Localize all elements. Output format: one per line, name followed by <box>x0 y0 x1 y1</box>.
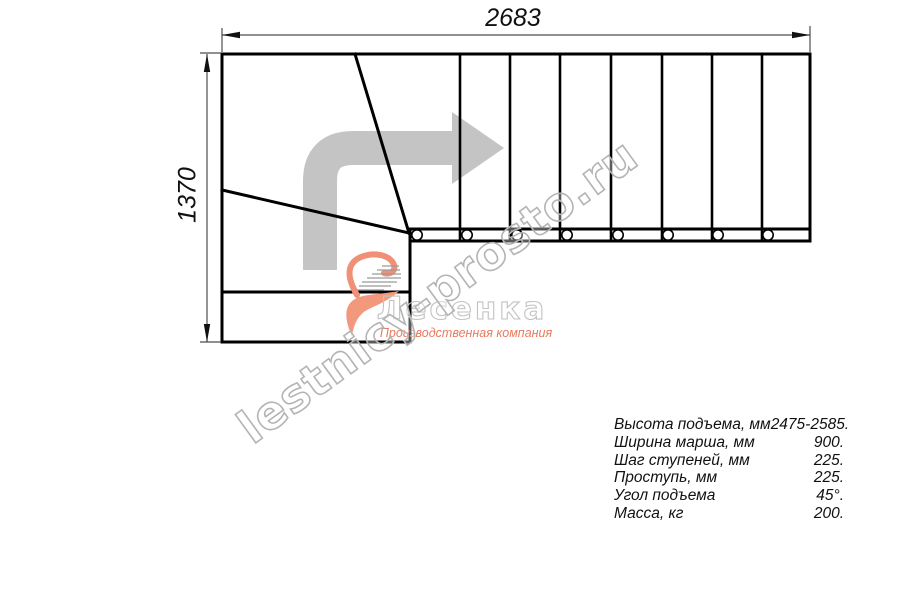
left-dimension-label: 1370 <box>174 167 203 223</box>
spec-row: Высота подъема, мм 2475-2585. <box>614 416 844 434</box>
spec-label: Шаг ступеней, мм <box>614 452 750 470</box>
spec-value: 225. <box>814 469 844 487</box>
spec-value: 45°. <box>816 487 844 505</box>
spec-label: Угол подъема <box>614 487 715 505</box>
logo-speed-lines-icon <box>357 266 401 290</box>
spec-row: Ширина марша, мм 900. <box>614 434 844 452</box>
spec-row: Угол подъема 45°. <box>614 487 844 505</box>
logo-swoosh-top-icon <box>350 254 395 295</box>
stair-plan-canvas: Лесенка Производственная компания lestni… <box>0 0 900 600</box>
spec-row: Шаг ступеней, мм 225. <box>614 452 844 470</box>
spec-label: Высота подъема, мм <box>614 416 771 434</box>
spec-label: Проступь, мм <box>614 469 717 487</box>
spec-label: Ширина марша, мм <box>614 434 755 452</box>
spec-value: 2475-2585. <box>771 416 849 434</box>
spec-value: 900. <box>814 434 844 452</box>
top-dimension-label: 2683 <box>485 4 541 33</box>
spec-value: 200. <box>814 505 844 523</box>
spec-value: 225. <box>814 452 844 470</box>
spec-row: Проступь, мм 225. <box>614 469 844 487</box>
spec-label: Масса, кг <box>614 505 683 523</box>
spec-row: Масса, кг 200. <box>614 505 844 523</box>
spec-list: Высота подъема, мм 2475-2585. Ширина мар… <box>614 416 844 523</box>
